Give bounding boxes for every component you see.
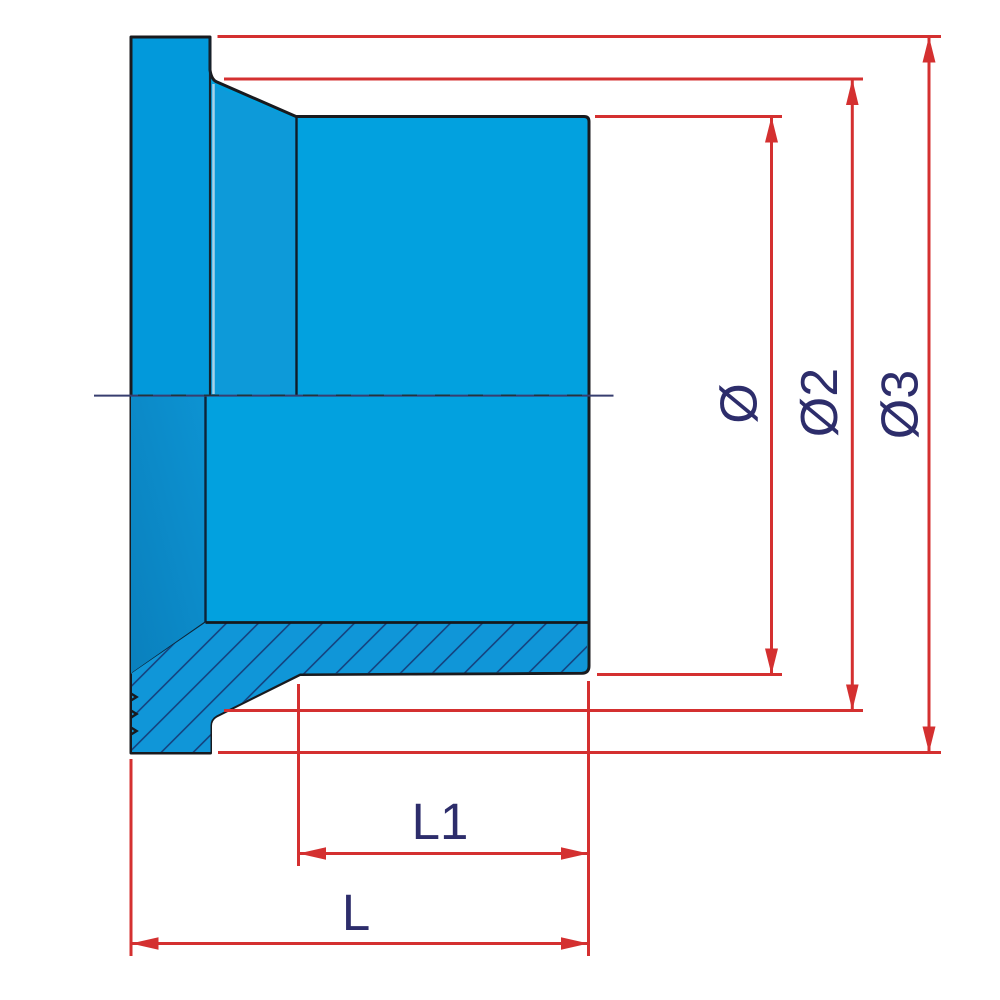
svg-text:L: L: [342, 884, 370, 941]
svg-text:Ø2: Ø2: [791, 368, 849, 437]
svg-text:Ø3: Ø3: [872, 370, 930, 439]
svg-text:L1: L1: [412, 793, 469, 850]
svg-text:Ø: Ø: [711, 383, 769, 423]
